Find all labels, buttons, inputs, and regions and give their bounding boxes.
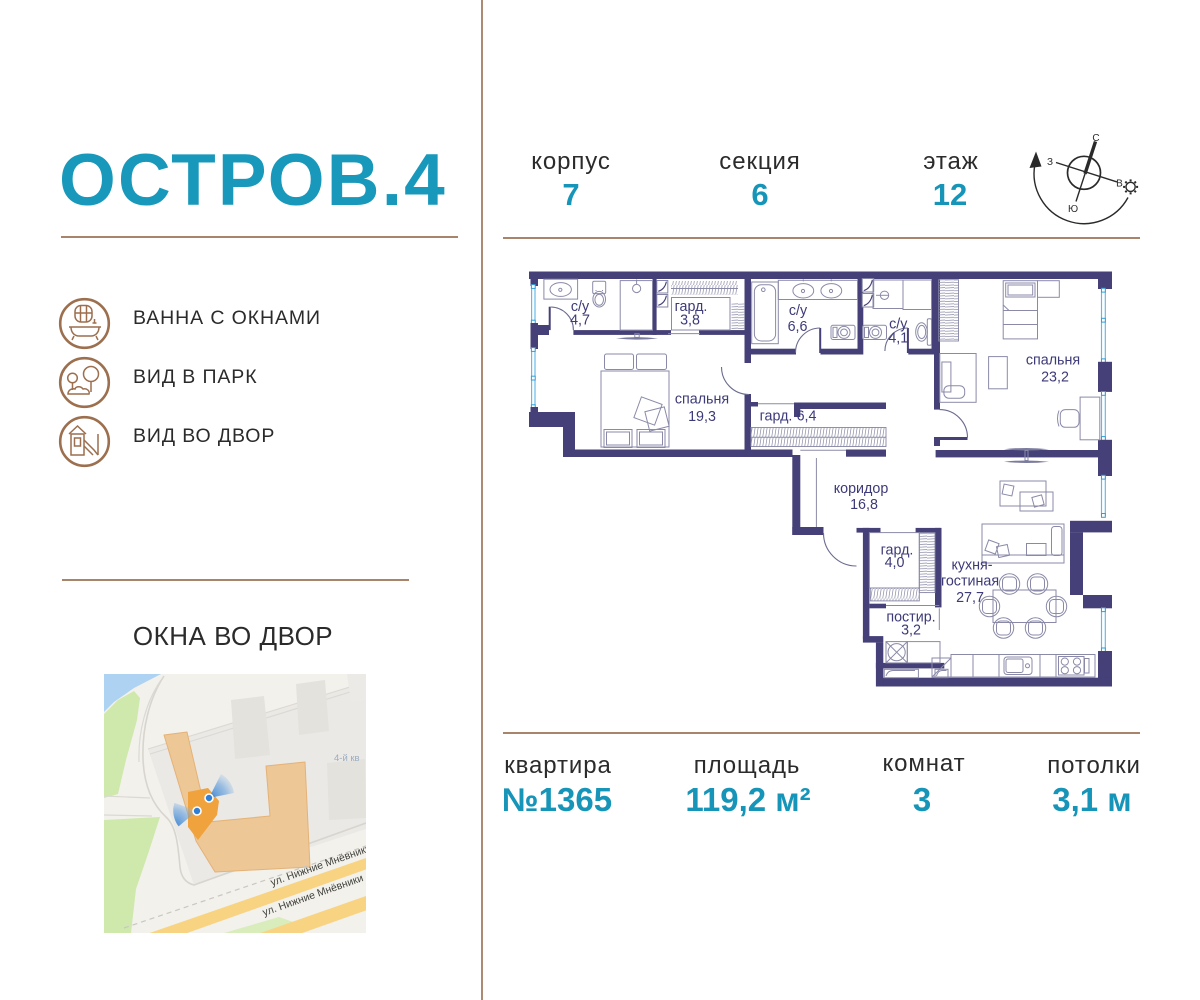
svg-text:4,1: 4,1 <box>888 331 908 347</box>
svg-text:27,7: 27,7 <box>956 590 984 606</box>
svg-text:с/у: с/у <box>789 303 808 319</box>
svg-text:19,3: 19,3 <box>688 409 716 425</box>
svg-text:З: З <box>1047 157 1053 168</box>
svg-text:4,0: 4,0 <box>885 555 905 571</box>
svg-text:Ю: Ю <box>1068 204 1078 215</box>
svg-text:4,7: 4,7 <box>570 313 590 329</box>
svg-text:4-й кв: 4-й кв <box>334 753 360 764</box>
svg-text:гостиная: гостиная <box>941 574 999 590</box>
svg-text:23,2: 23,2 <box>1041 370 1069 386</box>
svg-text:6,6: 6,6 <box>788 319 808 335</box>
svg-text:6,4: 6,4 <box>797 409 817 425</box>
svg-text:С: С <box>1092 133 1099 144</box>
svg-text:коридор: коридор <box>834 481 889 497</box>
svg-text:кухня-: кухня- <box>951 558 992 574</box>
svg-text:спальня: спальня <box>675 392 729 408</box>
svg-text:3,8: 3,8 <box>680 313 700 329</box>
svg-text:3,2: 3,2 <box>901 623 921 639</box>
svg-text:спальня: спальня <box>1026 353 1080 369</box>
svg-text:16,8: 16,8 <box>850 497 878 513</box>
svg-text:В: В <box>1116 179 1123 190</box>
svg-text:гард.: гард. <box>760 409 793 425</box>
